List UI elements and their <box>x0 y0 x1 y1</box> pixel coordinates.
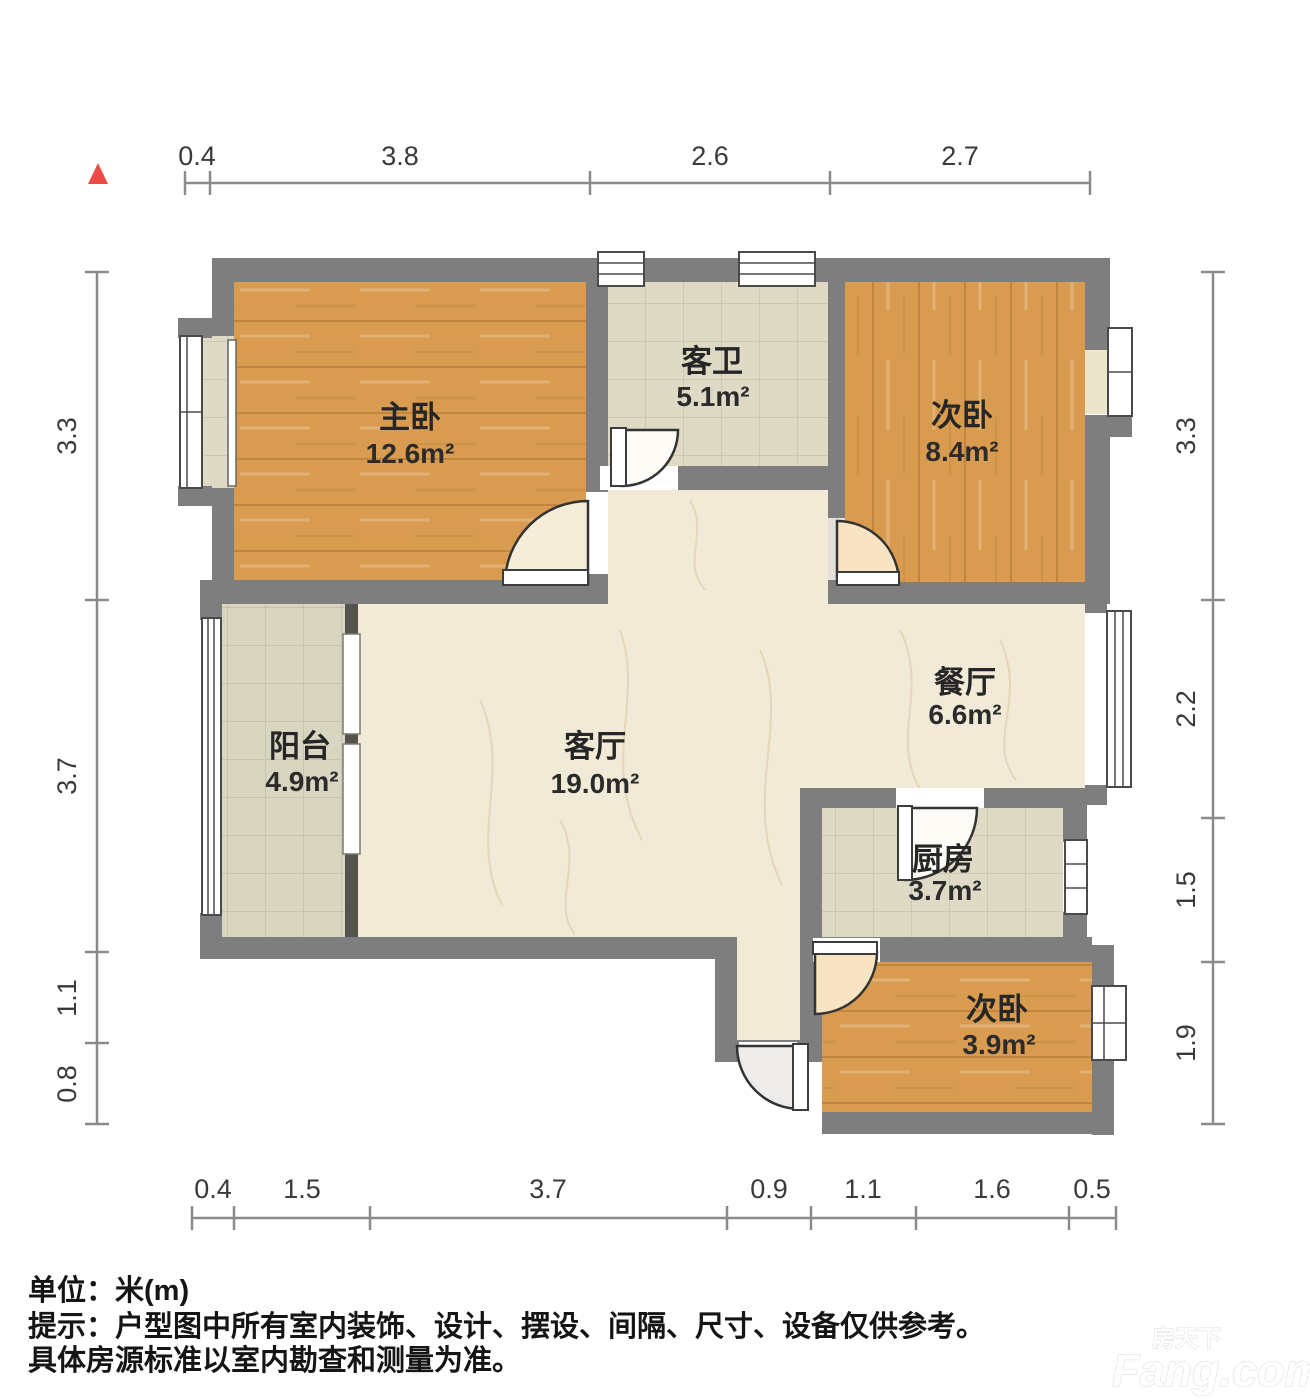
room-living-name: 客厅 <box>564 729 626 764</box>
dim-left-3: 0.8 <box>52 1065 82 1103</box>
dim-bottom-6: 0.5 <box>1073 1174 1111 1204</box>
room-bed3-area: 3.9m² <box>962 1029 1035 1060</box>
room-dining-name: 餐厅 <box>934 665 996 700</box>
room-bath-area: 5.1m² <box>676 381 749 412</box>
dim-bottom-4: 1.1 <box>844 1174 882 1204</box>
room-bed2-name: 次卧 <box>931 398 993 433</box>
dining-window <box>1107 611 1131 787</box>
footer-unit: 单位：米(m) <box>28 1273 189 1307</box>
dim-right-2: 1.5 <box>1171 871 1201 909</box>
room-living-area: 19.0m² <box>551 768 640 799</box>
master-bay-window <box>180 336 202 488</box>
dim-top-2: 2.6 <box>691 141 729 171</box>
floorplan-page: 主卧 12.6m² 客卫 5.1m² 次卧 8.4m² 阳台 4.9m² 客厅 … <box>0 0 1310 1400</box>
room-dining-area: 6.6m² <box>928 699 1001 730</box>
footer-note1: 提示：户型图中所有室内装饰、设计、摆设、间隔、尺寸、设备仅供参考。 <box>28 1309 985 1343</box>
balcony-window <box>202 618 221 915</box>
dim-bottom-2: 3.7 <box>529 1174 567 1204</box>
bathroom-window-right <box>739 252 815 286</box>
balcony-slider-panel <box>343 634 360 734</box>
room-master-name: 主卧 <box>379 400 441 435</box>
dim-top-3: 2.7 <box>941 141 979 171</box>
dim-right-3: 1.9 <box>1171 1024 1201 1062</box>
room-balcony-area: 4.9m² <box>265 766 338 797</box>
room-master-area: 12.6m² <box>366 438 455 469</box>
fang-watermark-en: Fang.com <box>1112 1345 1310 1396</box>
room-bath-name: 客卫 <box>681 344 743 379</box>
floorplan-canvas: 主卧 12.6m² 客卫 5.1m² 次卧 8.4m² 阳台 4.9m² 客厅 … <box>0 0 1310 1400</box>
room-balcony-name: 阳台 <box>269 729 331 764</box>
room-bed2-area: 8.4m² <box>925 436 998 467</box>
dim-bottom-5: 1.6 <box>973 1174 1011 1204</box>
dim-bottom-3: 0.9 <box>750 1174 788 1204</box>
bathroom-window-left <box>598 252 644 286</box>
room-bed3-name: 次卧 <box>966 992 1028 1027</box>
dim-top-1: 3.8 <box>381 141 419 171</box>
dim-bottom-1: 1.5 <box>283 1174 321 1204</box>
kitchen-window <box>1065 840 1087 914</box>
room-kitchen-area: 3.7m² <box>908 875 981 906</box>
dim-bottom-0: 0.4 <box>194 1174 232 1204</box>
bedroom3-window <box>1092 986 1126 1060</box>
dim-right-0: 3.3 <box>1171 417 1201 455</box>
dim-top-0: 0.4 <box>178 141 216 171</box>
footer-note2: 具体房源标准以室内勘查和测量为准。 <box>28 1343 521 1377</box>
room-kitchen-name: 厨房 <box>912 842 974 877</box>
dim-right-1: 2.2 <box>1171 690 1201 728</box>
dim-left-2: 1.1 <box>52 979 82 1017</box>
master-niche-divider <box>228 340 236 486</box>
dim-left-0: 3.3 <box>52 417 82 455</box>
balcony-partition <box>343 604 360 937</box>
dim-left-1: 3.7 <box>52 757 82 795</box>
balcony-slider-panel <box>343 744 360 854</box>
